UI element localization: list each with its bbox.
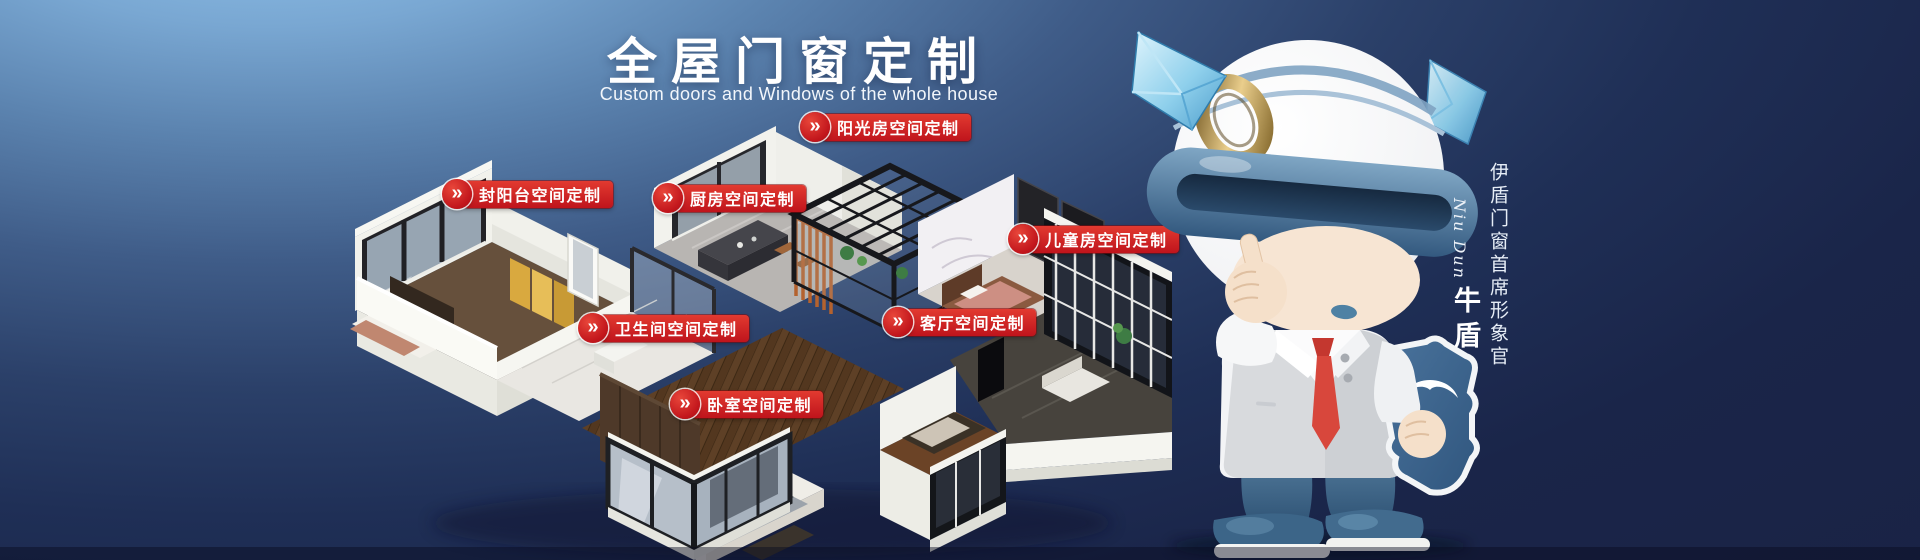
room-label-kitchen[interactable]: » 厨房空间定制 bbox=[653, 183, 806, 213]
room-label-living-room[interactable]: » 客厅空间定制 bbox=[883, 307, 1036, 337]
room-label-text: 卧室空间定制 bbox=[692, 391, 823, 418]
room-label-text: 客厅空间定制 bbox=[905, 309, 1036, 336]
room-label-sunroom[interactable]: » 阳光房空间定制 bbox=[800, 112, 971, 142]
double-chevron-icon: » bbox=[670, 389, 700, 419]
mascot-name: 牛盾 bbox=[1446, 286, 1485, 356]
double-chevron-icon: » bbox=[578, 313, 608, 343]
room-label-text: 阳光房空间定制 bbox=[822, 114, 971, 141]
bottom-strip bbox=[0, 547, 1920, 560]
mascot-signature: Niu Dun bbox=[1450, 198, 1469, 280]
double-chevron-icon: » bbox=[653, 183, 683, 213]
room-label-text: 封阳台空间定制 bbox=[464, 181, 613, 208]
room-label-text: 卫生间空间定制 bbox=[600, 315, 749, 342]
mascot-role-vertical-text: 伊盾门窗首席形象官 bbox=[1484, 162, 1511, 369]
house-floorplan-illustration bbox=[342, 98, 1172, 560]
hero-banner: 全屋门窗定制 Custom doors and Windows of the w… bbox=[0, 0, 1920, 560]
mascot-illustration bbox=[1130, 26, 1490, 560]
room-label-bedroom[interactable]: » 卧室空间定制 bbox=[670, 389, 823, 419]
double-chevron-icon: » bbox=[800, 112, 830, 142]
double-chevron-icon: » bbox=[1008, 224, 1038, 254]
room-label-text: 厨房空间定制 bbox=[675, 185, 806, 212]
double-chevron-icon: » bbox=[883, 307, 913, 337]
room-label-bathroom[interactable]: » 卫生间空间定制 bbox=[578, 313, 749, 343]
room-label-balcony[interactable]: » 封阳台空间定制 bbox=[442, 179, 613, 209]
double-chevron-icon: » bbox=[442, 179, 472, 209]
